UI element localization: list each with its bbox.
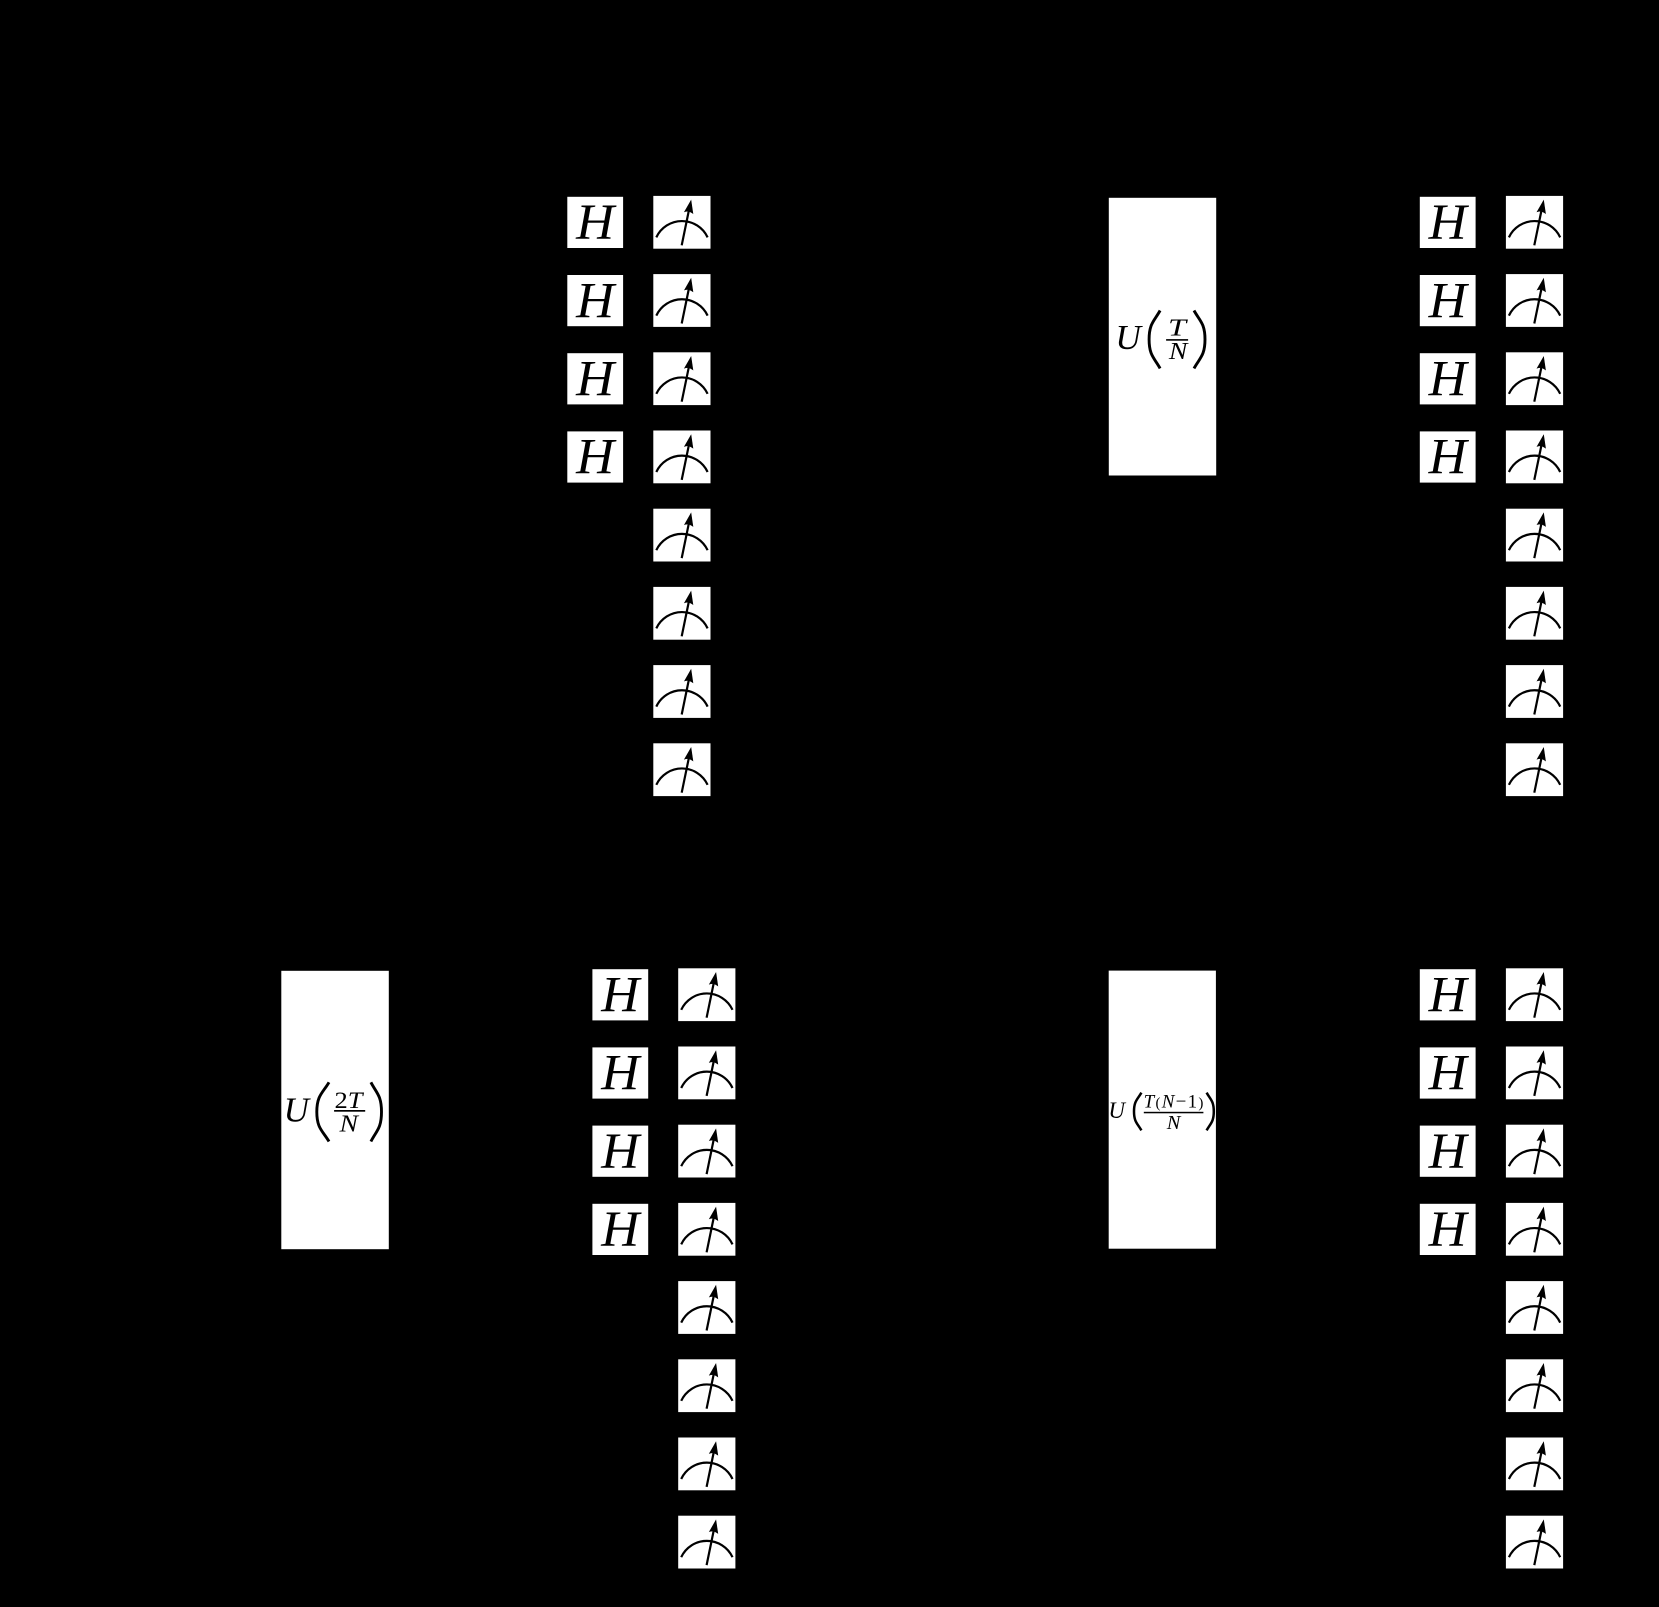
svg-text:N: N xyxy=(1166,1112,1182,1134)
svg-text:N: N xyxy=(1168,338,1189,365)
svg-text:T(N−1): T(N−1) xyxy=(1144,1092,1204,1113)
svg-text:N: N xyxy=(338,1110,359,1137)
svg-text:U: U xyxy=(1108,1098,1126,1123)
svg-text:U: U xyxy=(1115,318,1143,357)
svg-text:U: U xyxy=(284,1090,312,1129)
